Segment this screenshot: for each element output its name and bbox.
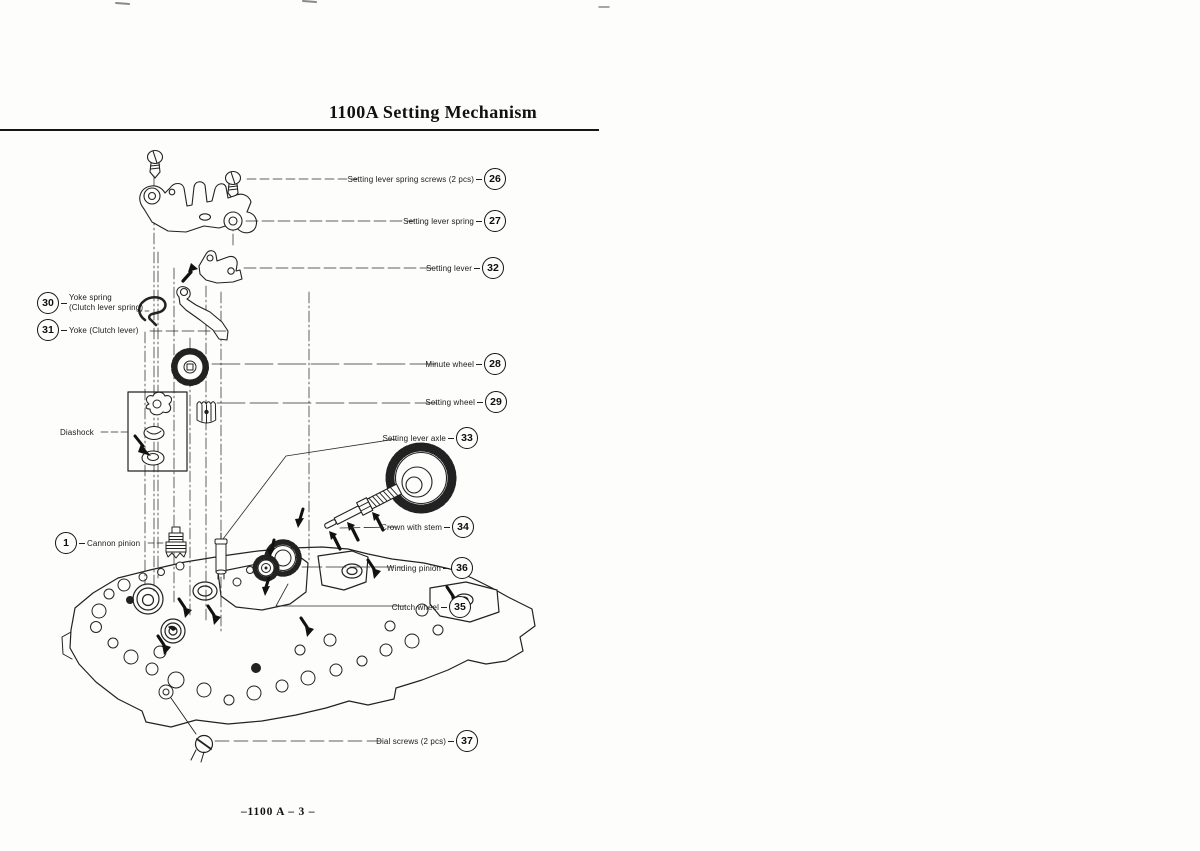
setting-lever-illustration	[183, 251, 242, 283]
label-connector-dash	[476, 179, 482, 180]
manual-page: 1100A Setting Mechanism –1100 A – 3 – Se…	[0, 0, 1200, 851]
label-connector-dash	[61, 330, 67, 331]
label-text: Setting lever spring	[403, 217, 474, 226]
label-text: Dial screws (2 pcs)	[376, 737, 446, 746]
part-number-badge: 1	[55, 532, 77, 554]
part-label-setting-lever-axle: Setting lever axle 33	[382, 427, 478, 449]
label-connector-dash	[441, 607, 447, 608]
label-text: Cannon pinion	[87, 539, 140, 548]
label-text: Clutch wheel	[392, 603, 439, 612]
part-number-badge: 28	[484, 353, 506, 375]
part-label-setting-lever: Setting lever 32	[426, 257, 504, 279]
part-number-badge: 26	[484, 168, 506, 190]
part-number-badge: 36	[451, 557, 473, 579]
part-number-badge: 35	[449, 596, 471, 618]
label-connector-dash	[477, 402, 483, 403]
page-title: 1100A Setting Mechanism	[329, 102, 537, 123]
yoke-illustration	[177, 287, 228, 340]
label-text: Setting lever	[426, 264, 472, 273]
label-text: Yoke (Clutch lever)	[69, 326, 139, 335]
title-rule	[0, 129, 599, 131]
label-connector-dash	[476, 364, 482, 365]
yoke-spring-illustration	[139, 297, 165, 325]
setting-wheel-illustration	[197, 402, 216, 423]
setting-lever-axle-illustration	[215, 533, 227, 579]
label-text: Diashock	[60, 428, 94, 437]
label-connector-dash	[448, 438, 454, 439]
exploded-view-diagram	[0, 0, 1200, 851]
label-connector-dash	[476, 221, 482, 222]
scan-marks	[116, 1, 609, 7]
part-number-badge: 30	[37, 292, 59, 314]
part-label-clutch-wheel: Clutch wheel 35	[392, 596, 471, 618]
label-text: Setting lever axle	[382, 434, 446, 443]
part-label-setting-wheel: Setting wheel 29	[425, 391, 507, 413]
minute-wheel-illustration	[174, 351, 206, 383]
part-label-diashock: Diashock	[60, 421, 94, 443]
part-label-crown-with-stem: Crown with stem 34	[381, 516, 474, 538]
cannon-pinion-illustration	[166, 527, 186, 558]
label-text: Setting lever spring screws (2 pcs)	[348, 175, 474, 184]
part-number-badge: 37	[456, 730, 478, 752]
part-label-setting-lever-spring: Setting lever spring 27	[403, 210, 506, 232]
part-label-dial-screws: Dial screws (2 pcs) 37	[376, 730, 478, 752]
label-connector-dash	[61, 303, 67, 304]
label-text: Yoke spring (Clutch lever spring)	[69, 293, 143, 314]
label-text: Winding pinion	[387, 564, 441, 573]
page-number: –1100 A – 3 –	[241, 806, 315, 818]
label-connector-dash	[443, 568, 449, 569]
diashock-illustration	[128, 392, 187, 471]
part-number-badge: 32	[482, 257, 504, 279]
part-number-badge: 27	[484, 210, 506, 232]
part-label-cannon-pinion: 1 Cannon pinion	[55, 532, 140, 554]
part-label-yoke-spring: 30 Yoke spring (Clutch lever spring)	[37, 292, 143, 314]
label-connector-dash	[474, 268, 480, 269]
label-text: Setting wheel	[425, 398, 475, 407]
label-text: Crown with stem	[381, 523, 442, 532]
part-label-yoke: 31 Yoke (Clutch lever)	[37, 319, 139, 341]
part-number-badge: 33	[456, 427, 478, 449]
part-label-minute-wheel: Minute wheel 28	[425, 353, 506, 375]
setting-lever-spring-illustration	[140, 182, 257, 233]
label-connector-dash	[444, 527, 450, 528]
label-connector-dash	[79, 543, 85, 544]
part-number-badge: 34	[452, 516, 474, 538]
label-text: Minute wheel	[425, 360, 474, 369]
label-connector-dash	[448, 741, 454, 742]
part-number-badge: 31	[37, 319, 59, 341]
part-number-badge: 29	[485, 391, 507, 413]
part-label-setting-lever-spring-screws: Setting lever spring screws (2 pcs) 26	[348, 168, 506, 190]
part-label-winding-pinion: Winding pinion 36	[387, 557, 473, 579]
